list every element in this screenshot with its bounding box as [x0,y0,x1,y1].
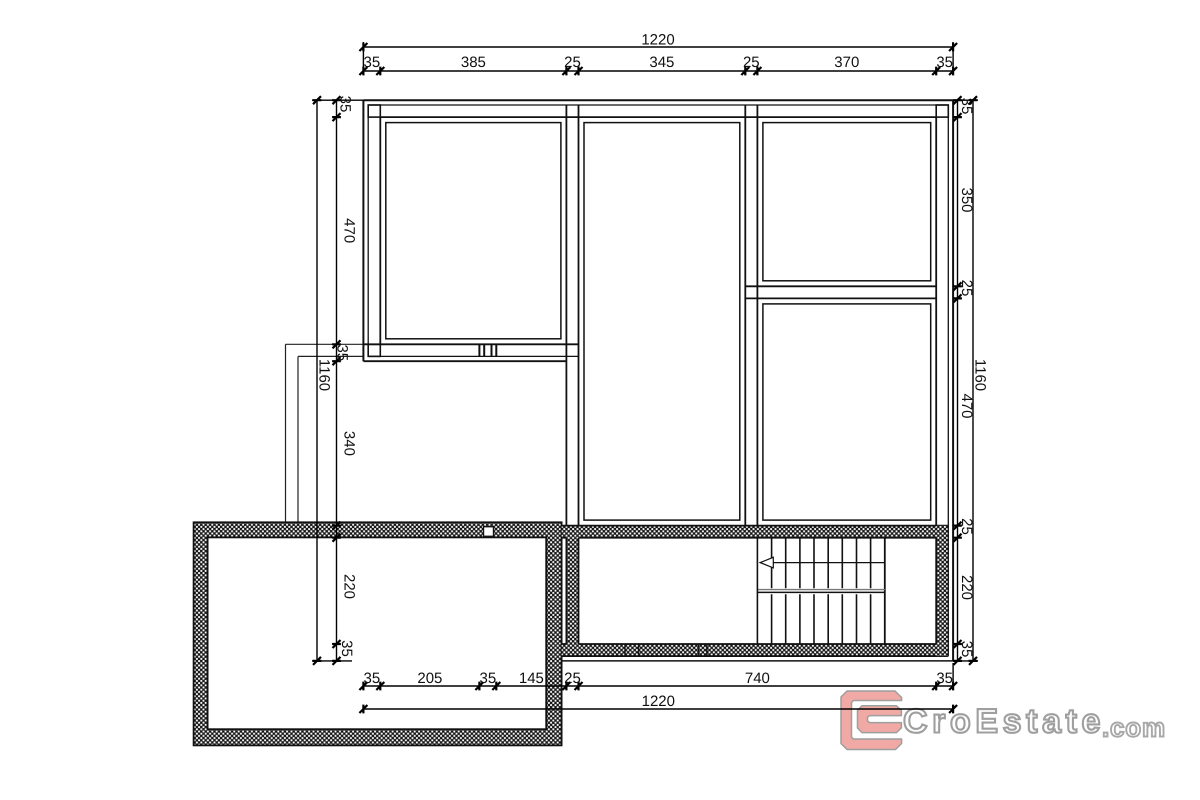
svg-text:340: 340 [341,431,358,456]
svg-text:370: 370 [834,54,859,71]
svg-text:345: 345 [649,54,674,71]
svg-text:1220: 1220 [642,693,675,710]
svg-text:35: 35 [480,670,497,687]
svg-text:25: 25 [564,670,581,687]
svg-text:1160: 1160 [316,359,333,391]
svg-text:.com: .com [1102,713,1166,743]
svg-text:35: 35 [364,670,381,687]
svg-text:25: 25 [743,54,760,71]
svg-text:1220: 1220 [641,32,674,49]
svg-text:25: 25 [564,54,581,71]
svg-text:470: 470 [341,218,358,243]
svg-text:1160: 1160 [972,359,989,391]
svg-text:205: 205 [417,670,442,687]
svg-text:35: 35 [936,670,953,687]
svg-text:740: 740 [745,670,770,687]
svg-text:145: 145 [519,670,544,687]
svg-text:385: 385 [461,54,486,71]
svg-text:35: 35 [337,96,354,113]
svg-text:35: 35 [364,54,381,71]
svg-text:35: 35 [936,54,953,71]
svg-text:220: 220 [341,574,358,599]
svg-text:35: 35 [338,640,355,657]
svg-text:CroEstate: CroEstate [903,703,1105,741]
svg-text:35: 35 [334,344,351,361]
